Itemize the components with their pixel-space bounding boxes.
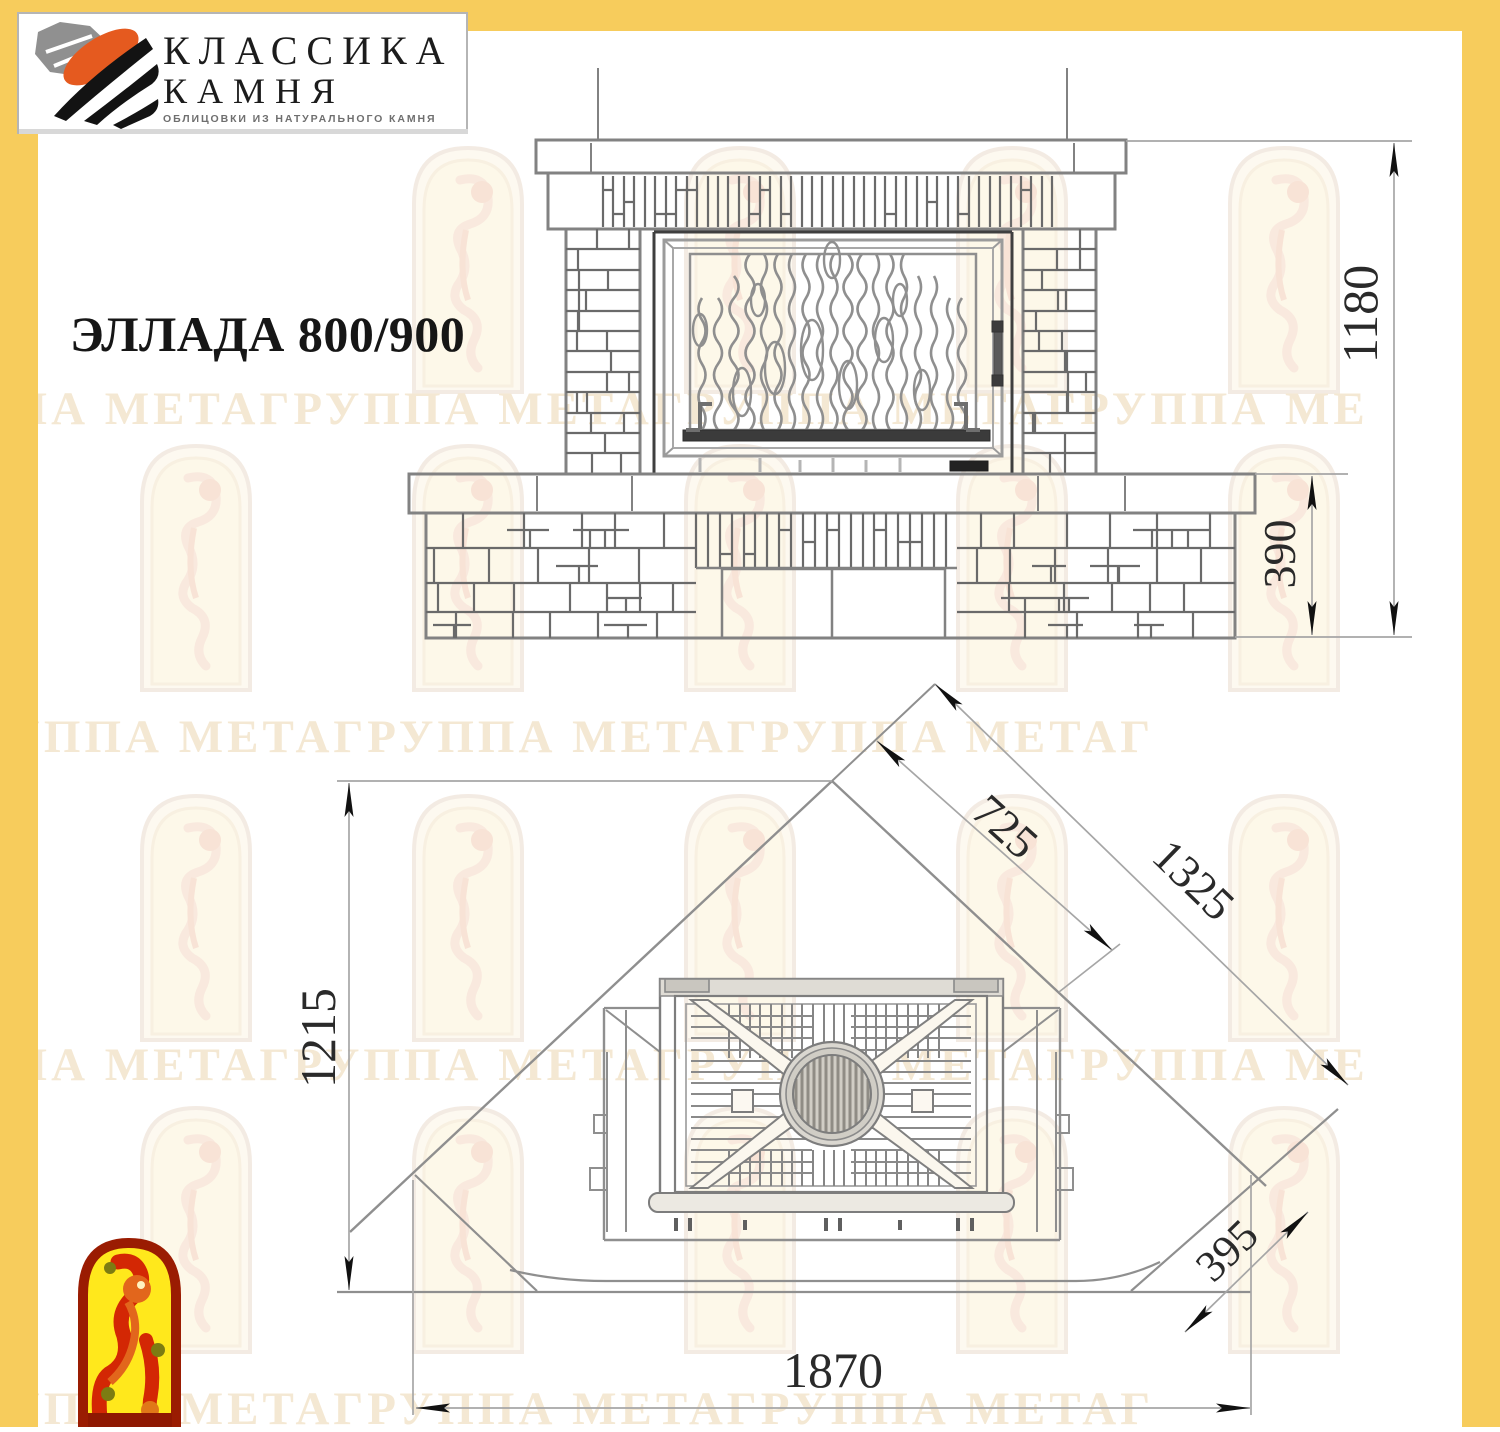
svg-text:ППА МЕТАГРУППА МЕТАГРУППА МЕТА: ППА МЕТАГРУППА МЕТАГРУППА МЕТАГРУППА МЕ [0,1039,1369,1091]
svg-text:ОБЛИЦОВКИ ИЗ НАТУРАЛЬНОГО КАМН: ОБЛИЦОВКИ ИЗ НАТУРАЛЬНОГО КАМНЯ [163,113,436,125]
svg-text:ППА МЕТАГРУППА МЕТАГРУППА МЕТА: ППА МЕТАГРУППА МЕТАГРУППА МЕТАГРУППА МЕ [0,383,1369,435]
svg-text:1180: 1180 [1332,265,1388,363]
svg-text:1870: 1870 [783,1342,883,1398]
svg-text:390: 390 [1254,520,1305,589]
svg-text:КАМНЯ: КАМНЯ [163,71,345,111]
svg-text:КЛАССИКА: КЛАССИКА [163,28,454,73]
svg-text:ГРУППА МЕТАГРУППА МЕТАГРУППА М: ГРУППА МЕТАГРУППА МЕТАГРУППА МЕТАГ [0,711,1154,763]
svg-text:ЭЛЛАДА 800/900: ЭЛЛАДА 800/900 [70,306,465,362]
svg-text:1215: 1215 [290,988,346,1088]
